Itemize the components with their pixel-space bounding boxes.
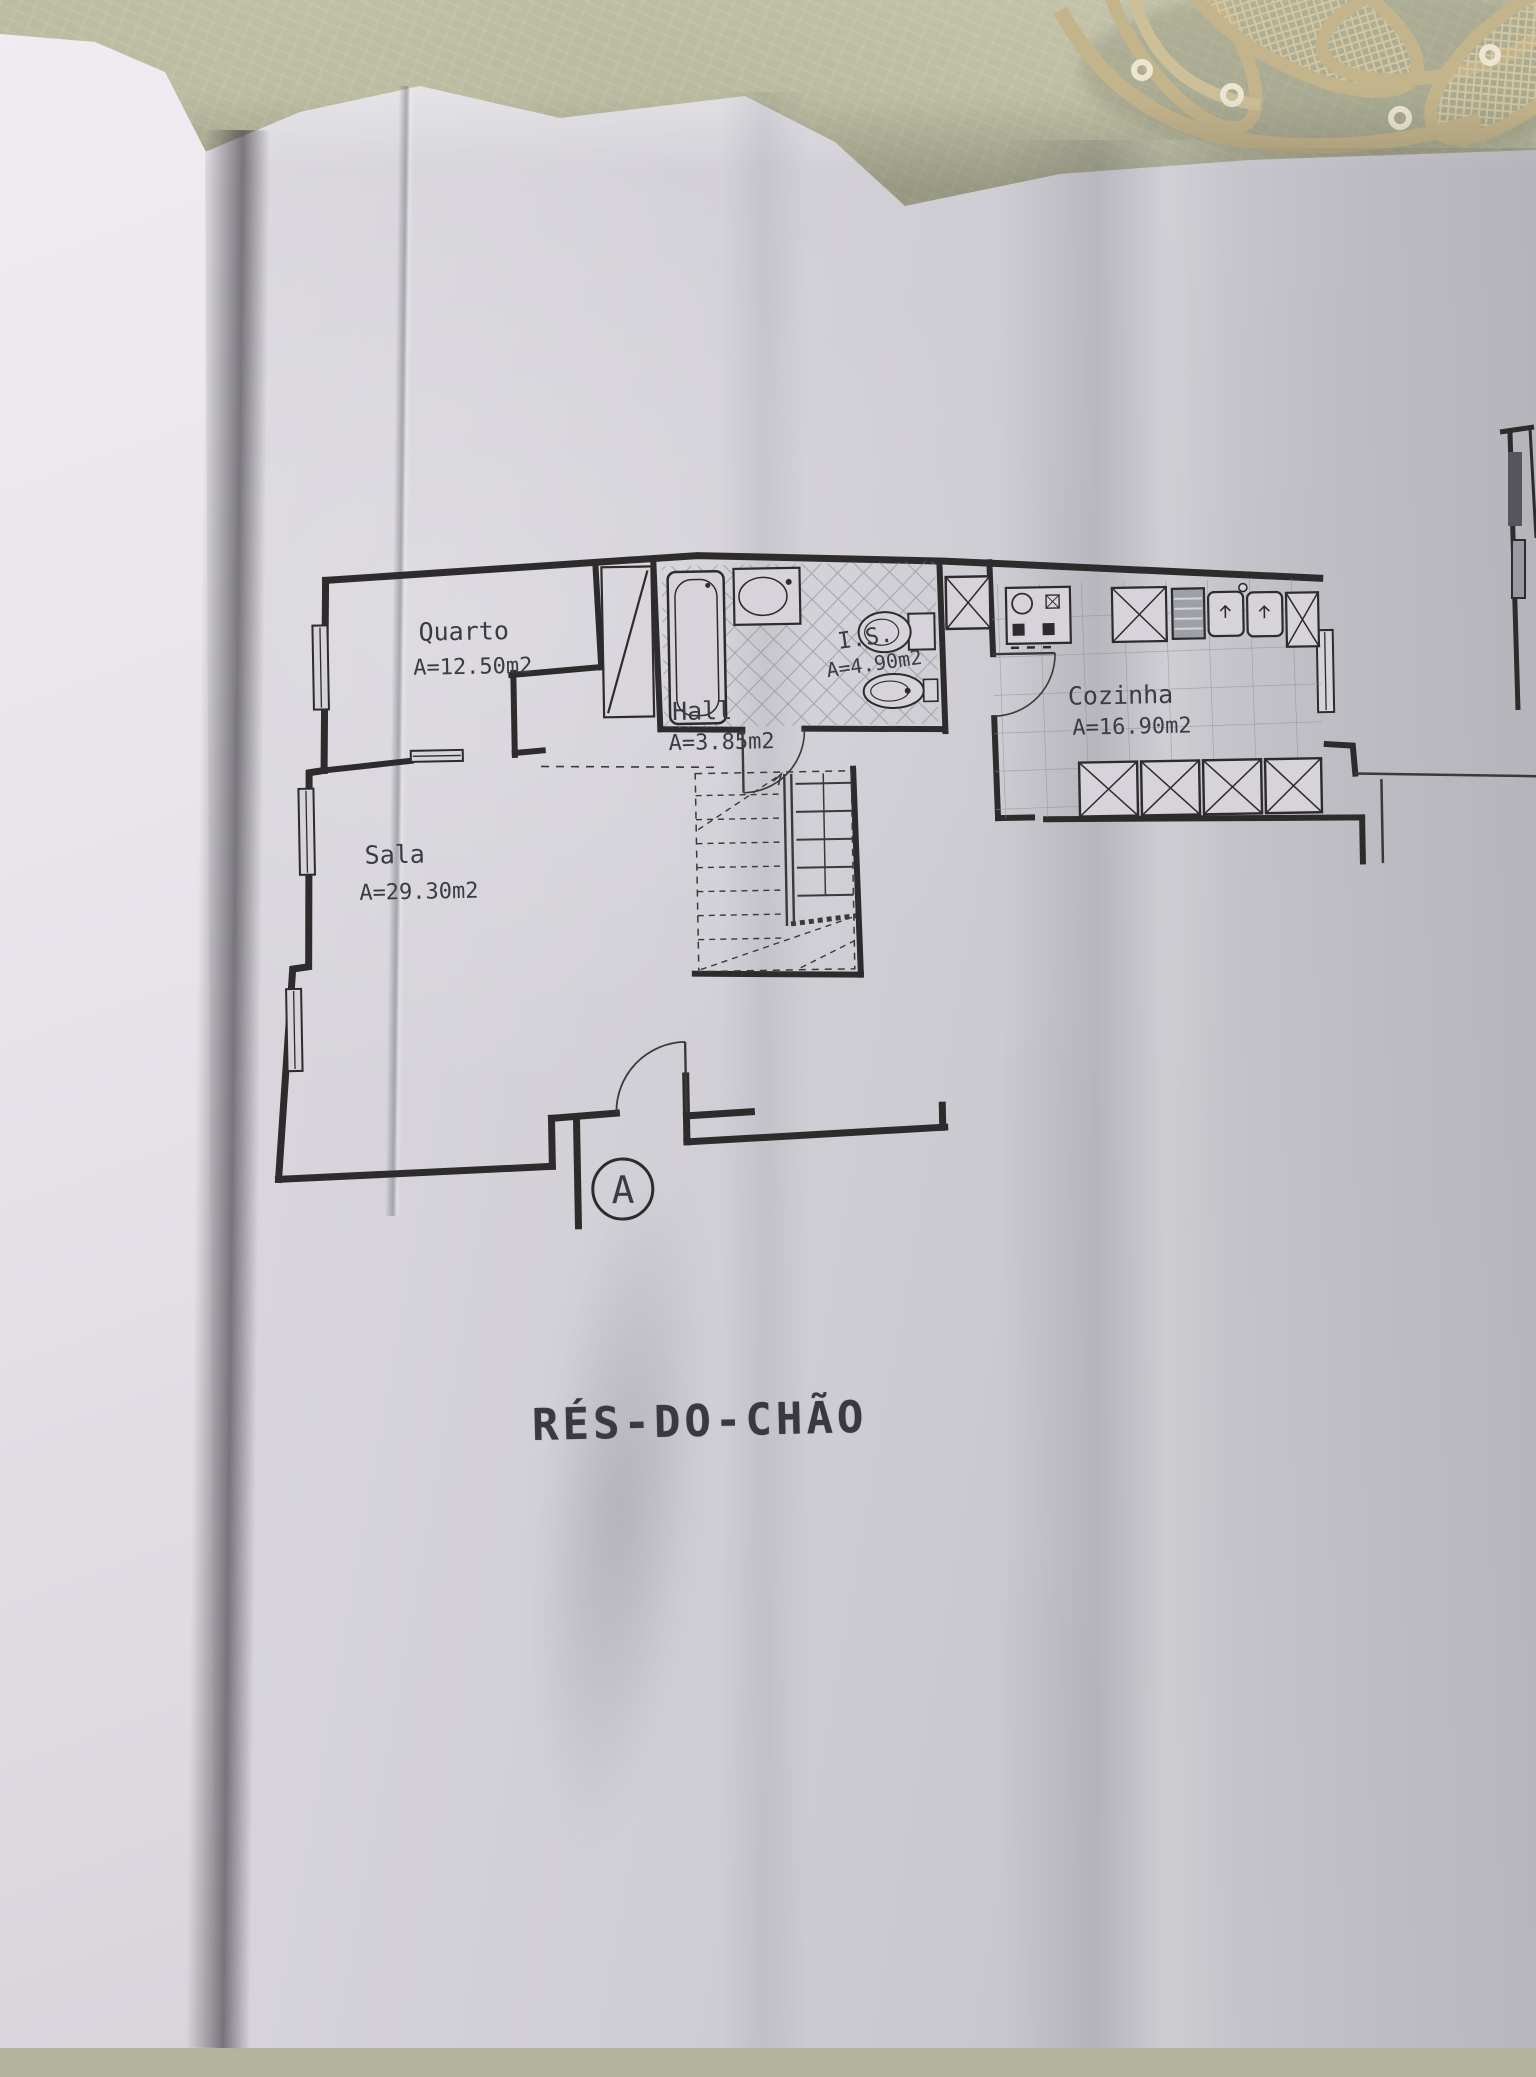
room-area-quarto: A=12.50m2 <box>413 654 533 681</box>
kitchen: Cozinha A=16.90m2 <box>992 578 1324 818</box>
room-label-sala: Sala <box>364 840 425 870</box>
room-area-sala: A=29.30m2 <box>359 879 479 906</box>
hall-dashed-boundary <box>541 763 715 770</box>
room-area-cozinha: A=16.90m2 <box>1072 714 1192 741</box>
floor-plan-drawing: I.S. A=4.90m2 <box>239 508 1536 1342</box>
bathroom: I.S. A=4.90m2 <box>661 561 939 794</box>
drainer-icon <box>1172 588 1205 639</box>
room-label-quarto: Quarto <box>418 616 509 647</box>
adjacent-plan-sliver <box>1494 418 1536 718</box>
washbasin-icon <box>733 568 800 625</box>
entrance-door-arc <box>615 1042 686 1113</box>
thin-exterior-lines <box>1355 770 1536 863</box>
stove-icon <box>1006 587 1071 648</box>
section-marker: A <box>592 1159 653 1220</box>
flue-box <box>946 576 991 629</box>
stairs <box>695 771 857 972</box>
room-label-hall: Hall <box>672 696 733 726</box>
room-label-cozinha: Cozinha <box>1068 680 1174 711</box>
wardrobe <box>601 566 654 717</box>
floor-plan-title: RÉS-DO-CHÃO <box>531 1392 868 1451</box>
corner-cabinet-x-icon <box>1286 592 1319 647</box>
cabinet-x-icon <box>1112 587 1167 642</box>
room-area-hall: A=3.85m2 <box>668 729 774 756</box>
section-marker-letter: A <box>611 1168 635 1212</box>
